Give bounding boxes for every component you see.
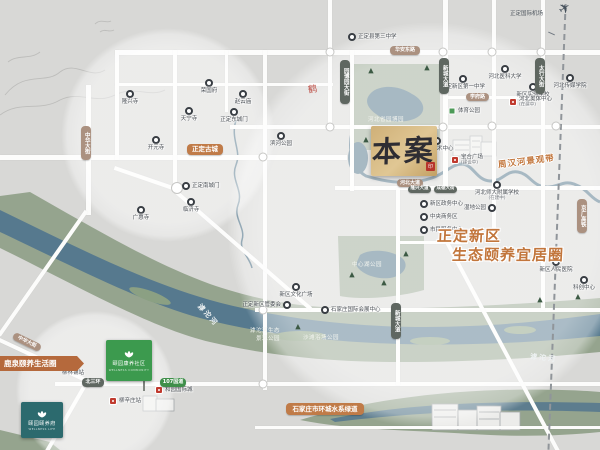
road-badge: 园博园大街 <box>340 60 350 104</box>
green-community-sign: 颐园康养社区 WELLNESS COMMUNITY <box>106 340 152 381</box>
tree-icon: ▲ <box>363 137 368 144</box>
poi-marker-icon <box>501 65 509 73</box>
red-seal-ornament: 鹤 <box>307 81 318 95</box>
poi-marker-icon <box>137 206 145 214</box>
poi-label: 河北奥体中心(在建中) <box>519 96 552 107</box>
road-badge: 学府路 <box>466 93 489 101</box>
road-node <box>326 123 335 132</box>
lotus-logo-icon <box>121 349 137 360</box>
poi-label: 湿地公园 <box>464 205 486 211</box>
poi-label: 天宁寺 <box>181 116 198 122</box>
poi-marker-icon <box>566 74 574 82</box>
road-badge: 隆兴大道 <box>408 186 431 193</box>
poi-marker-icon <box>185 107 193 115</box>
road-node <box>439 123 448 132</box>
poi-label: 柳辛庄站 <box>119 398 141 404</box>
poi-sublabel: (在建中) <box>475 196 519 201</box>
poi-label: 滨河公园 <box>270 141 292 147</box>
poi-label: 正定南城门 <box>192 183 220 189</box>
road-node <box>488 48 497 57</box>
poi-label: 和园国际城 <box>165 387 193 393</box>
tree-icon: ▲ <box>295 324 300 331</box>
poi-marker-icon <box>239 90 247 98</box>
road-node <box>488 122 497 131</box>
tree-icon: ▲ <box>381 280 386 287</box>
lotus-logo-icon <box>34 409 50 420</box>
items-layer: ▲▲▲▲▲▲▲▲▲▲华安东路学府路河北大道正定古城石家庄市环城水系绿道中华大街中… <box>0 0 600 450</box>
area-label: 滹沱河 <box>530 354 558 364</box>
poi-label: 开元寺 <box>148 145 165 151</box>
road-badge: 太行大街 <box>535 58 545 94</box>
project-site-marker: 本案 印 <box>371 126 437 176</box>
poi-marker-icon <box>509 98 517 106</box>
area-label: 河北省园博园 <box>368 118 404 124</box>
poi-label: 临济寺 <box>183 207 200 213</box>
poi-marker-icon <box>580 276 588 284</box>
poi-marker-icon <box>109 397 117 405</box>
area-label: 周汉河景观带 <box>498 155 556 170</box>
slogan-line2: 生态颐养宜居圈 <box>452 248 565 263</box>
project-seal-icon: 印 <box>426 162 435 171</box>
road-node <box>439 48 448 57</box>
road-badge: 北三环 <box>82 378 104 387</box>
road-badge: 正定古城 <box>187 144 223 155</box>
teal-brand-card: 颐园颐养府 WELLNESS LIFE <box>21 402 63 438</box>
tree-icon: ▲ <box>349 272 354 279</box>
road-badge: 107国道 <box>160 378 186 387</box>
road-node <box>259 380 268 389</box>
poi-marker-icon <box>205 79 213 87</box>
poi-sublabel: (在建中) <box>519 103 552 108</box>
road-badge: 石家庄市环城水系绿道 <box>286 403 364 415</box>
poi-marker-icon <box>230 108 238 116</box>
poi-label: 隆兴寺 <box>122 99 139 105</box>
road-node <box>552 122 561 131</box>
poi-label: 宝合广场(建设中) <box>461 154 483 165</box>
slogan-line1: 正定新区 <box>437 229 502 244</box>
road-node <box>326 48 335 57</box>
poi-marker-icon <box>420 226 428 234</box>
poi-marker-icon <box>420 200 428 208</box>
area-label: 滹沱河 <box>196 303 219 328</box>
poi-label: 河北师大附属学校(在建中) <box>475 190 519 201</box>
poi-label: 新区文化广场 <box>279 292 312 298</box>
area-label: 中心湖公园 <box>352 263 382 269</box>
teal-card-sub: WELLNESS LIFE <box>29 428 56 431</box>
poi-marker-icon <box>152 136 160 144</box>
green-sign-sub: WELLNESS COMMUNITY <box>109 369 150 372</box>
poi-marker-icon <box>451 156 459 164</box>
road-node <box>537 48 546 57</box>
poi-marker-icon <box>449 108 456 115</box>
luquan-ribbon: 鹿泉颐养生活圈 <box>0 356 84 371</box>
poi-marker-icon <box>277 132 285 140</box>
poi-marker-icon <box>493 181 501 189</box>
map-canvas: ▲▲▲▲▲▲▲▲▲▲华安东路学府路河北大道正定古城石家庄市环城水系绿道中华大街中… <box>0 0 600 450</box>
teal-card-name: 颐园颐养府 <box>28 422 56 427</box>
area-label: 正定国际机场 <box>510 12 543 18</box>
poi-marker-icon <box>126 90 134 98</box>
poi-marker-icon <box>420 213 428 221</box>
poi-label: 正定新区管委会 <box>242 302 281 308</box>
poi-label: 中央商务区 <box>430 214 458 220</box>
poi-label: 荣国府 <box>201 88 218 94</box>
poi-marker-icon <box>155 386 163 394</box>
poi-label: 河北传媒学院 <box>553 83 586 89</box>
road-badge: 中华大街 <box>12 332 42 352</box>
area-label: 景观公园 <box>256 337 280 343</box>
poi-label: 广惠寺 <box>133 215 150 221</box>
poi-marker-icon <box>187 198 195 206</box>
poi-sublabel: (建设中) <box>461 161 483 166</box>
road-badge: 中华大街 <box>81 126 91 160</box>
green-sign-name: 颐园康养社区 <box>112 362 145 367</box>
poi-label: 新区人民医院 <box>539 267 572 273</box>
tree-icon: ▲ <box>403 251 408 258</box>
tree-icon: ▲ <box>424 65 429 72</box>
poi-marker-icon <box>348 33 356 41</box>
poi-label: 石家庄国际会展中心 <box>331 307 381 313</box>
poi-label: 河北医科大学 <box>488 74 521 80</box>
tree-icon: ▲ <box>575 294 580 301</box>
poi-marker-icon <box>283 301 291 309</box>
poi-marker-icon <box>488 204 496 212</box>
road-badge: 新城大道 <box>439 58 449 94</box>
poi-label: 正定东城门 <box>220 117 248 123</box>
road-badge: 华安东路 <box>390 46 420 55</box>
tree-icon: ▲ <box>537 297 542 304</box>
area-label: 沙滩浴场公园 <box>303 336 339 342</box>
poi-label: 正定县第三中学 <box>358 34 397 40</box>
poi-marker-icon <box>292 283 300 291</box>
tree-icon: ▲ <box>368 68 373 75</box>
poi-marker-icon <box>182 182 190 190</box>
road-badge: 新城大道 <box>391 303 401 339</box>
poi-label: 新区政务中心 <box>430 201 463 207</box>
area-label: 滹沱河生态 <box>250 329 280 335</box>
road-node <box>259 153 268 162</box>
poi-marker-icon <box>321 306 329 314</box>
poi-label: 科创中心 <box>573 285 595 291</box>
poi-label: 赵云庙 <box>235 99 252 105</box>
poi-marker-icon <box>459 75 467 83</box>
poi-label: 体育公园 <box>458 108 480 114</box>
road-badge: 京广高铁 <box>577 199 587 233</box>
road-badge: 成德大街 <box>434 186 457 193</box>
